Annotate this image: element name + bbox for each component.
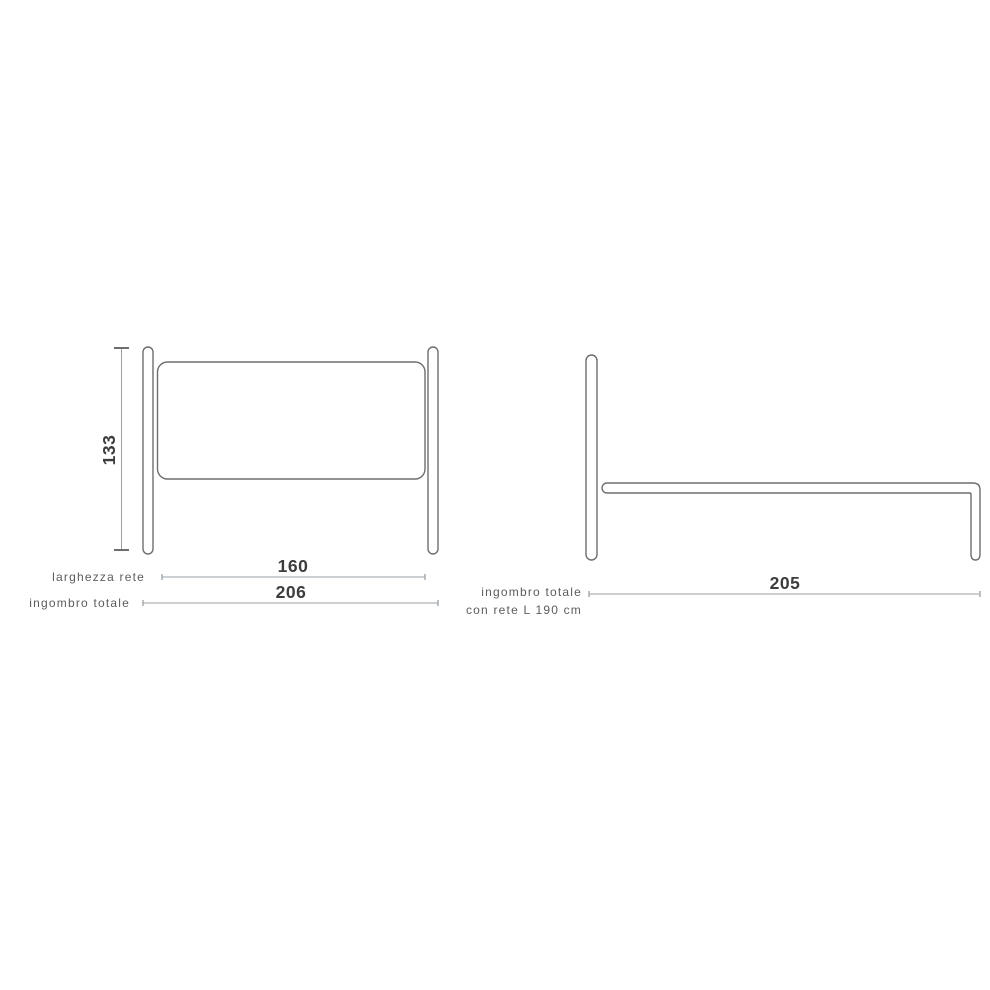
bed-dimension-diagram: 133 larghezza rete 160 ingombro totale 2… xyxy=(0,0,990,990)
side-length-dimension: ingombro totale con rete L 190 cm 205 xyxy=(466,573,980,617)
rete-width-dimension-label: larghezza rete xyxy=(52,570,145,584)
height-dimension: 133 xyxy=(99,348,129,550)
height-dimension-value: 133 xyxy=(99,435,119,466)
side-length-dimension-value: 205 xyxy=(770,573,801,593)
headboard-panel xyxy=(158,362,426,479)
front-right-leg xyxy=(428,347,438,554)
side-headboard-leg xyxy=(586,355,597,560)
rete-width-dimension-value: 160 xyxy=(278,556,309,576)
side-length-dimension-label-line1: ingombro totale xyxy=(481,585,582,599)
total-width-dimension: ingombro totale 206 xyxy=(29,582,438,610)
side-rail-and-foot-leg xyxy=(602,483,980,560)
total-width-dimension-label: ingombro totale xyxy=(29,596,130,610)
side-view: ingombro totale con rete L 190 cm 205 xyxy=(466,355,980,617)
technical-drawing-canvas: 133 larghezza rete 160 ingombro totale 2… xyxy=(0,0,990,990)
front-left-leg xyxy=(143,347,153,554)
rete-width-dimension: larghezza rete 160 xyxy=(52,556,425,584)
side-length-dimension-label-line2: con rete L 190 cm xyxy=(466,603,582,617)
front-view: 133 larghezza rete 160 ingombro totale 2… xyxy=(29,347,438,610)
total-width-dimension-value: 206 xyxy=(276,582,307,602)
